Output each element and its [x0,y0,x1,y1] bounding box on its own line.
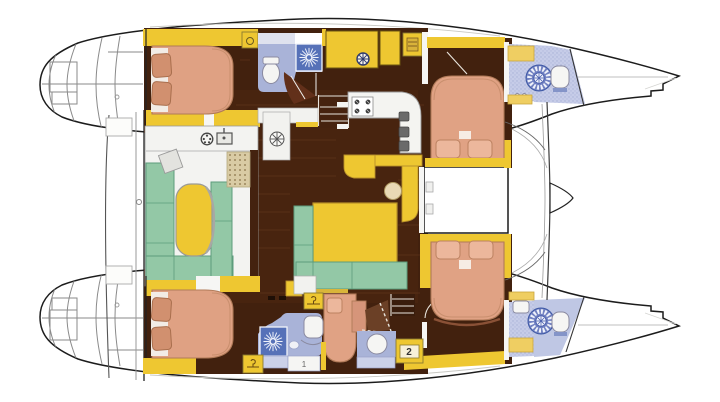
svg-text:1: 1 [302,360,307,369]
svg-text:2: 2 [406,347,412,358]
